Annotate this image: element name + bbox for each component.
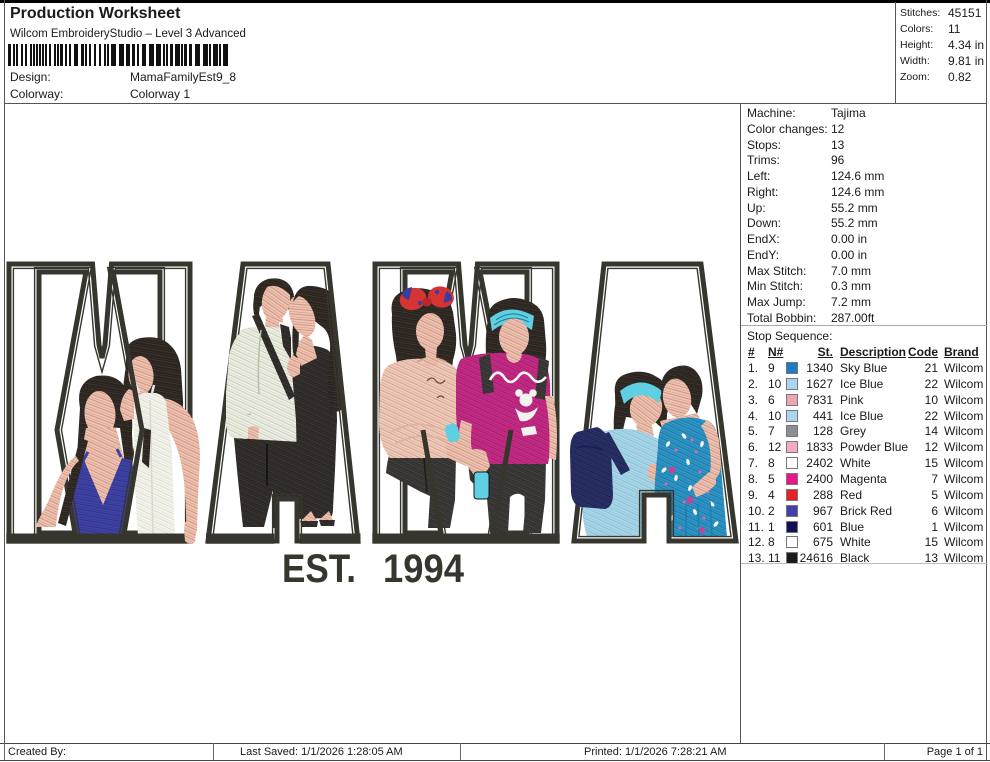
svg-text:EST.: EST. xyxy=(282,547,356,591)
svg-text:1994: 1994 xyxy=(383,547,465,591)
